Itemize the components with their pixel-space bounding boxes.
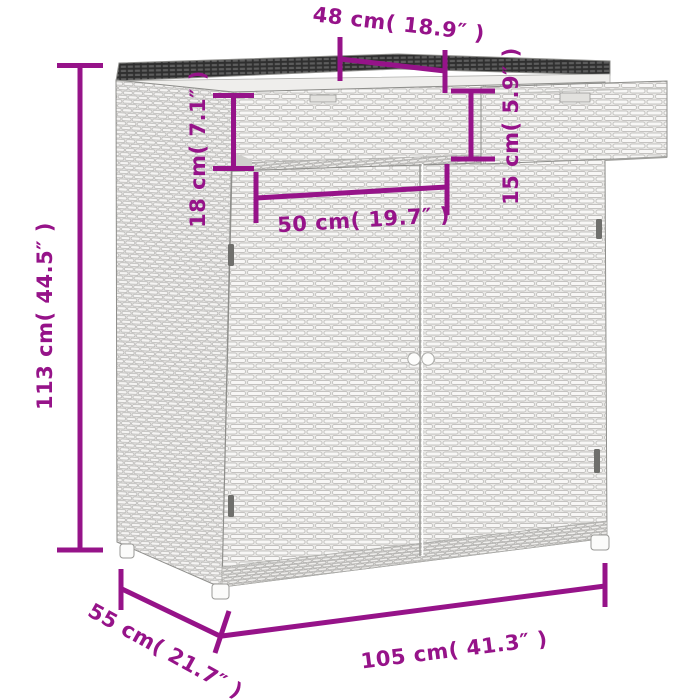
door-knob-right xyxy=(422,353,434,365)
cabinet-side-panel xyxy=(116,80,233,588)
cabinet-foot xyxy=(591,535,609,550)
door-knob-left xyxy=(408,353,420,365)
dim-top-section-height-label: 18 cm( 7.1″ ) xyxy=(186,70,210,228)
diagram-canvas: 48 cm( 18.9″ ) 18 cm( 7.1″ ) 15 cm( 5.9″… xyxy=(0,0,700,700)
drawer-handle-mark xyxy=(310,95,336,102)
door-hinge xyxy=(594,449,600,473)
dim-total-width-label: 105 cm( 41.3″ ) xyxy=(359,627,549,674)
cabinet-foot xyxy=(120,544,134,558)
dim-extension-height-label: 15 cm( 5.9″ ) xyxy=(499,47,523,205)
cabinet-foot xyxy=(212,584,229,599)
door-hinge xyxy=(228,244,234,266)
dim-total-height-label: 113 cm( 44.5″ ) xyxy=(33,222,57,410)
drawer-handle-mark xyxy=(560,93,590,102)
door-hinge xyxy=(228,495,234,517)
dim-total-height: 113 cm( 44.5″ ) xyxy=(33,66,103,551)
door-hinge xyxy=(596,219,602,239)
dim-depth-label: 55 cm( 21.7″ ) xyxy=(84,598,247,700)
product-dimension-diagram: 48 cm( 18.9″ ) 18 cm( 7.1″ ) 15 cm( 5.9″… xyxy=(0,0,700,700)
